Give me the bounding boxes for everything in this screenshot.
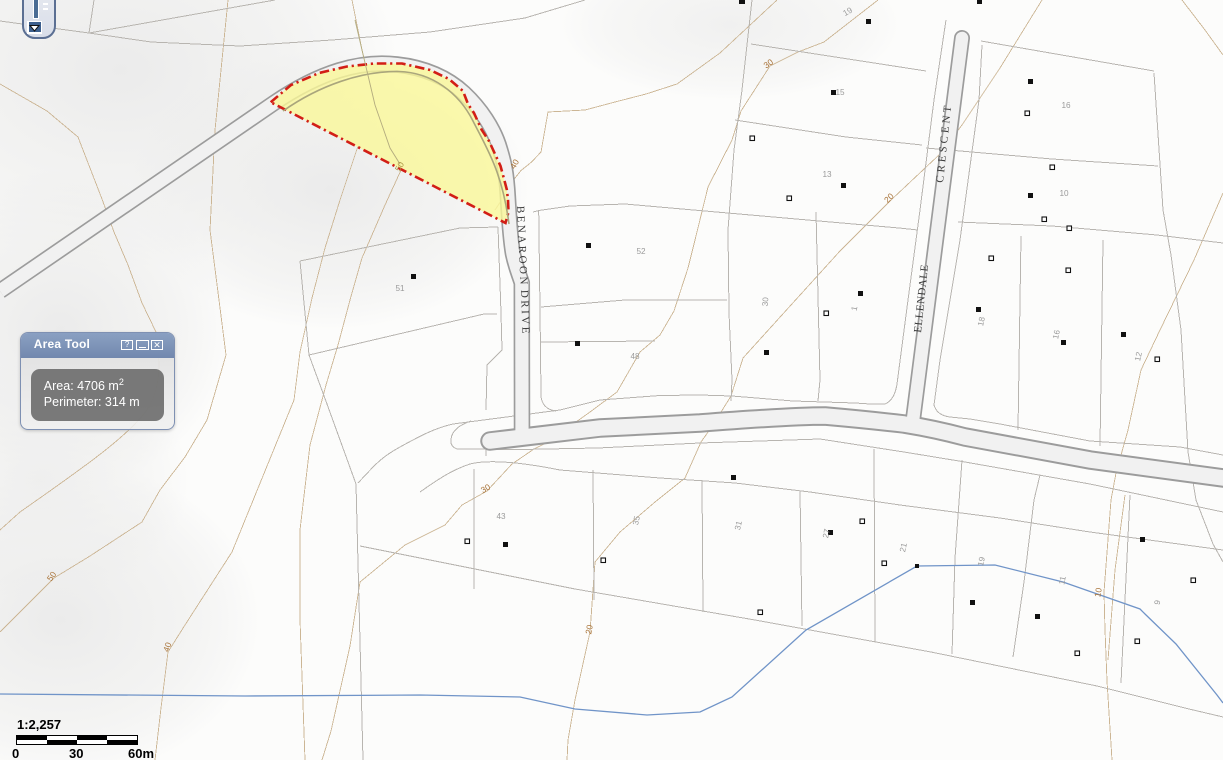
svg-text:30: 30 — [761, 296, 771, 306]
svg-text:13: 13 — [822, 170, 832, 179]
svg-text:10: 10 — [1092, 587, 1104, 598]
svg-text:DRIVE: DRIVE — [518, 290, 532, 337]
svg-text:35: 35 — [631, 515, 642, 526]
svg-text:15: 15 — [835, 88, 845, 97]
svg-text:48: 48 — [630, 352, 640, 361]
svg-text:31: 31 — [733, 520, 744, 531]
svg-text:1: 1 — [850, 305, 860, 312]
svg-text:20: 20 — [882, 191, 896, 205]
svg-text:16: 16 — [1051, 329, 1062, 340]
svg-text:12: 12 — [1133, 351, 1144, 362]
svg-text:30: 30 — [479, 482, 492, 496]
svg-text:21: 21 — [898, 542, 909, 553]
svg-text:18: 18 — [976, 316, 987, 327]
svg-text:43: 43 — [496, 512, 506, 521]
svg-text:20: 20 — [583, 624, 595, 635]
svg-text:51: 51 — [395, 284, 405, 293]
svg-text:27: 27 — [821, 528, 832, 539]
svg-text:16: 16 — [1061, 101, 1071, 110]
svg-text:11: 11 — [1057, 575, 1068, 586]
svg-text:10: 10 — [1059, 189, 1069, 198]
svg-text:9: 9 — [1153, 599, 1163, 606]
svg-text:52: 52 — [636, 247, 646, 256]
